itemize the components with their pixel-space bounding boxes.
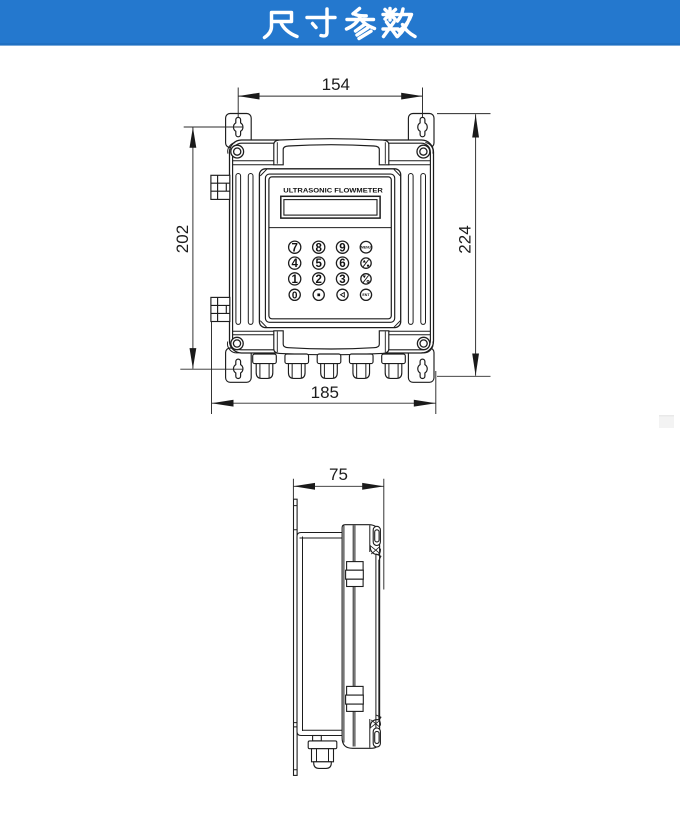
svg-text:4: 4 xyxy=(291,258,298,270)
svg-text:7: 7 xyxy=(291,242,297,254)
svg-text:1: 1 xyxy=(291,274,298,286)
svg-text:ENT: ENT xyxy=(362,293,370,297)
svg-text:5: 5 xyxy=(315,258,322,270)
svg-text:202: 202 xyxy=(173,225,192,253)
svg-text:75: 75 xyxy=(329,465,348,484)
svg-text:ULTRASONIC FLOWMETER: ULTRASONIC FLOWMETER xyxy=(283,187,383,194)
svg-text:8: 8 xyxy=(315,242,322,254)
svg-text:2: 2 xyxy=(315,274,321,286)
svg-text:154: 154 xyxy=(322,75,350,94)
svg-text:185: 185 xyxy=(311,383,339,402)
svg-text:224: 224 xyxy=(455,225,474,253)
svg-text:6: 6 xyxy=(339,258,345,270)
svg-text:0: 0 xyxy=(292,291,298,302)
svg-text:MENU: MENU xyxy=(361,246,372,250)
svg-text:3: 3 xyxy=(339,274,345,286)
svg-text:9: 9 xyxy=(339,242,345,254)
